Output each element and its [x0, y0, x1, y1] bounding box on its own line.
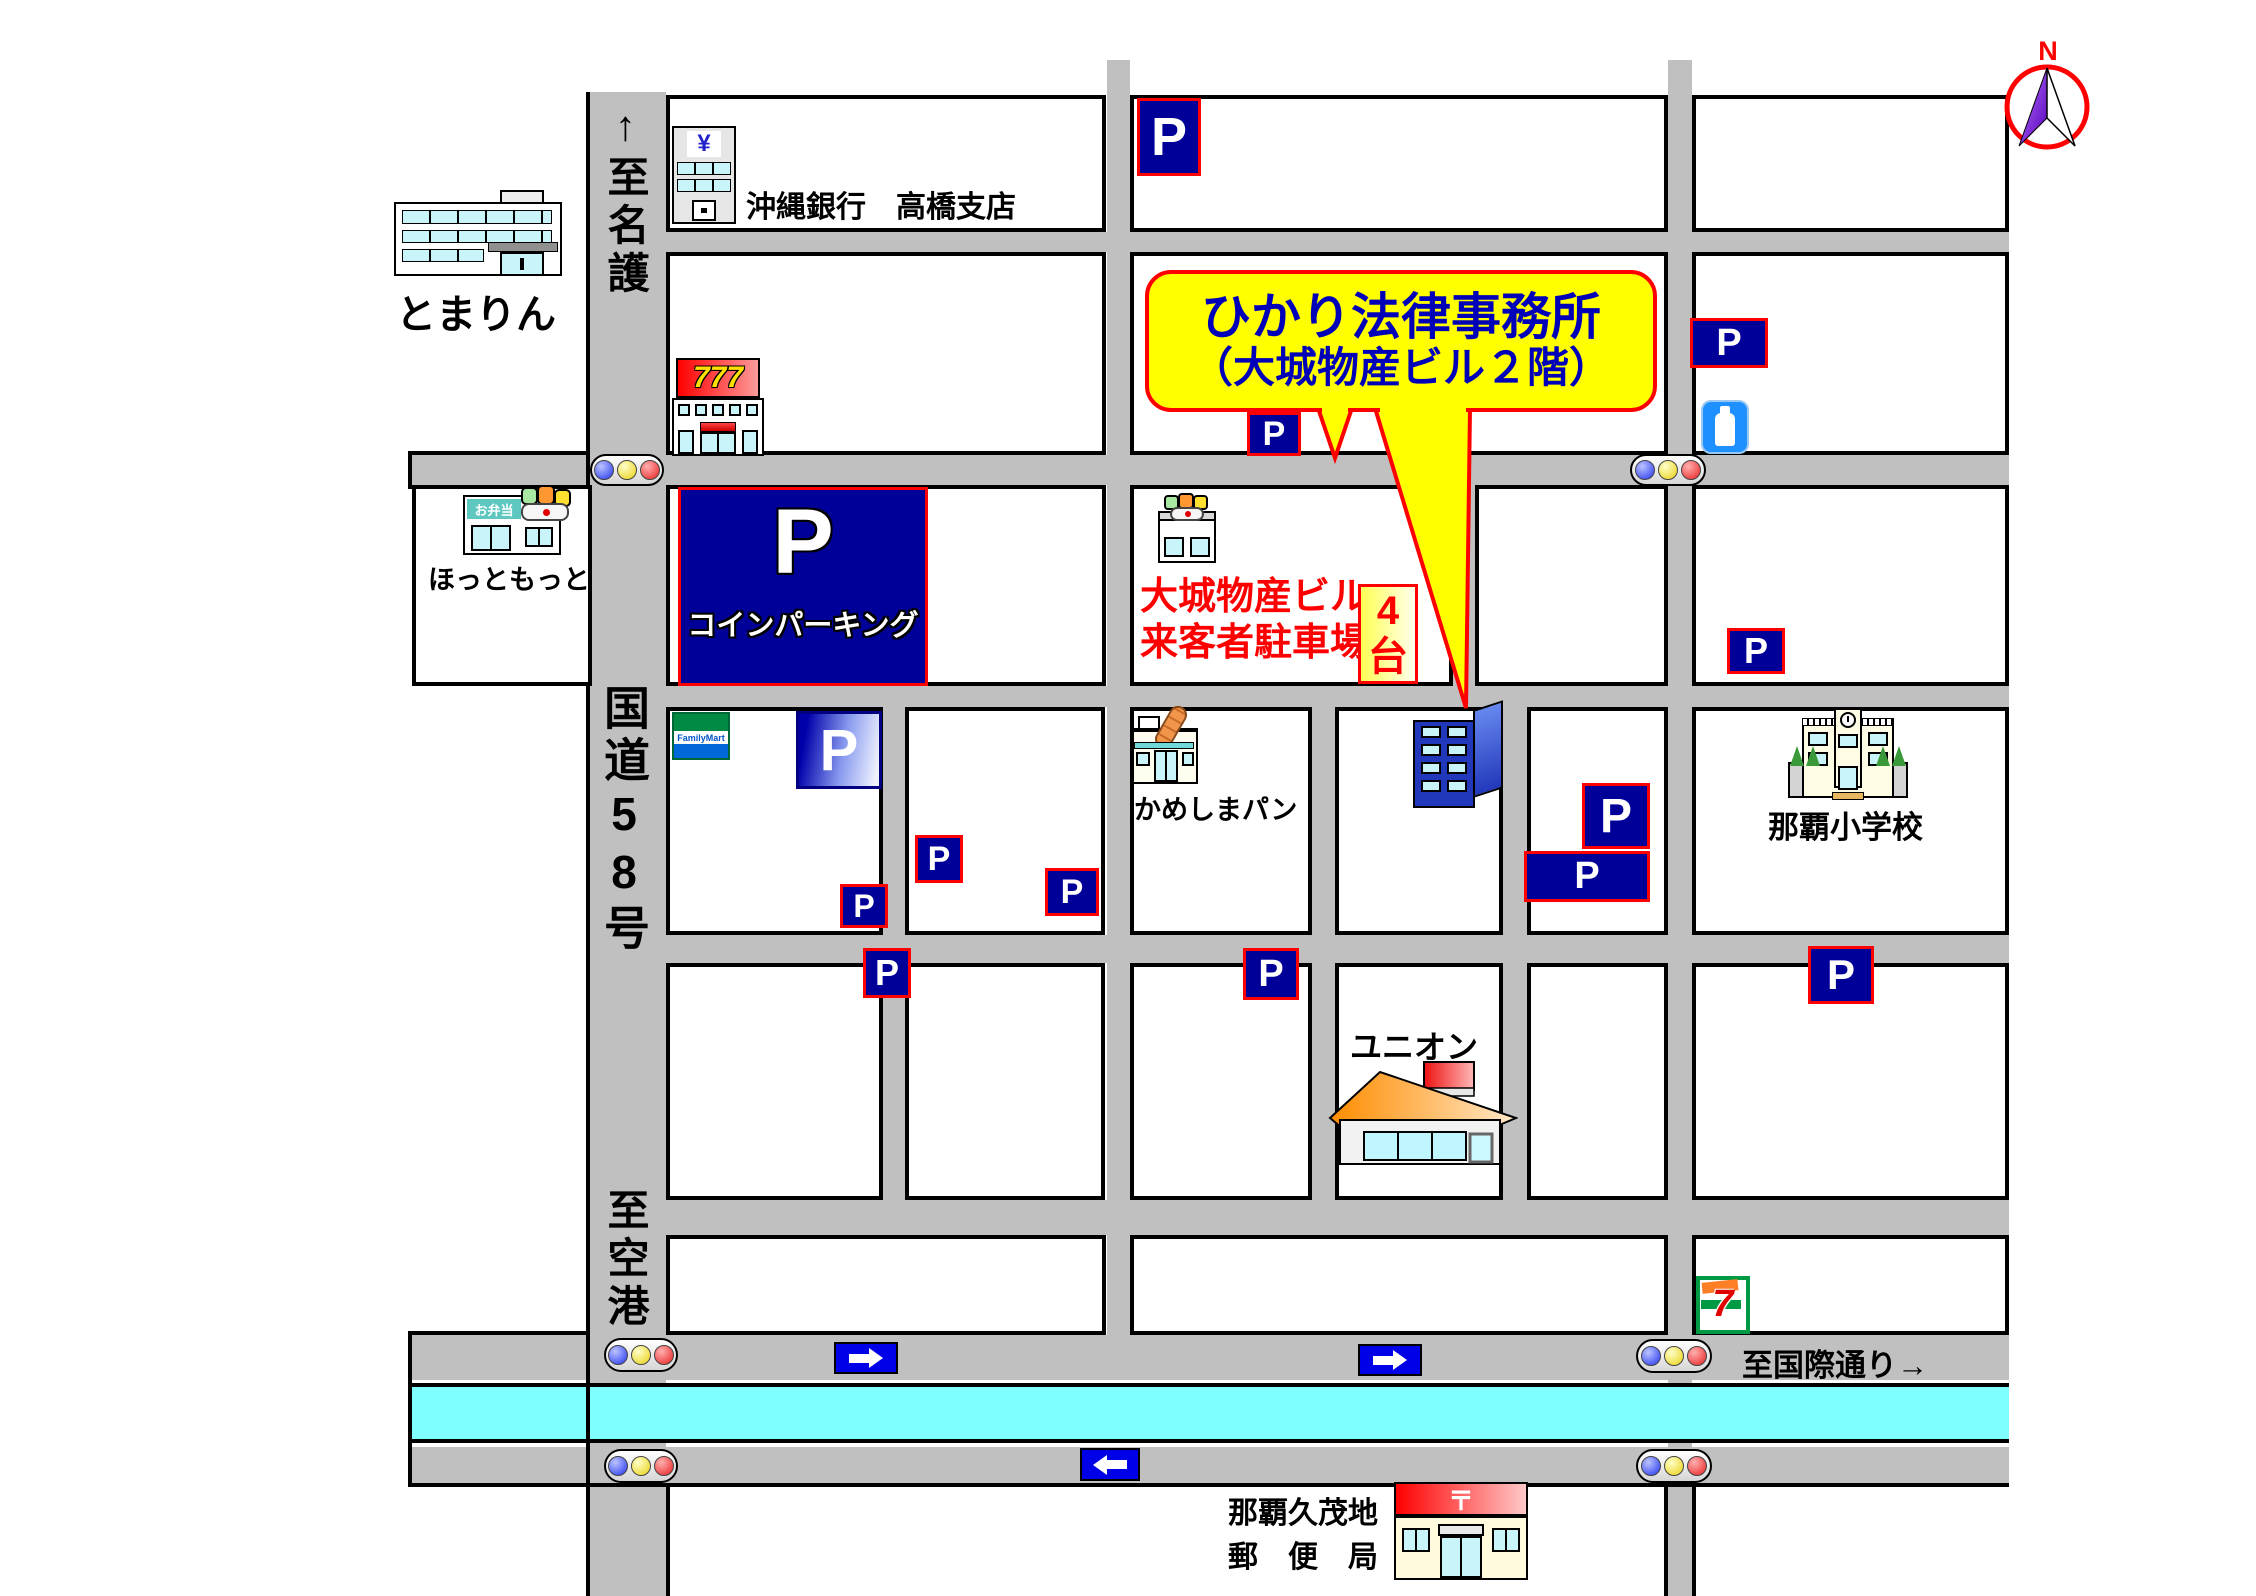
road-edge [412, 1331, 590, 1335]
parking-letter: P [1151, 106, 1187, 168]
kameshima-label: かめしまパン [1134, 788, 1297, 827]
city-block [1130, 95, 1668, 232]
hottomotto-sign: お弁当 [474, 500, 513, 519]
arrow-head [1393, 1350, 1407, 1370]
traffic-light [1630, 454, 1706, 486]
parking-letter: P [875, 952, 899, 994]
river-band [412, 1383, 2009, 1443]
road-label-to-kokusai: 至国際通り→ [1742, 1340, 1928, 1385]
post-office-label: 那覇久茂地 郵 便 局 [1213, 1488, 1393, 1576]
union-store-art [1328, 1056, 1518, 1170]
arrow-bar [849, 1354, 869, 1363]
school-icon [1788, 708, 1908, 802]
parking-sign: P [1808, 946, 1874, 1004]
road-edge [408, 451, 412, 489]
parking-letter: P [1600, 789, 1632, 844]
blue-bottle-icon [1701, 400, 1749, 454]
traffic-light [604, 1449, 678, 1483]
road-edge [408, 1331, 412, 1487]
arrow-head [1093, 1455, 1107, 1475]
traffic-lamp-yellow [631, 1345, 651, 1365]
city-block [666, 963, 883, 1200]
parking-letter: P [928, 840, 951, 879]
traffic-light [1636, 1449, 1712, 1483]
traffic-lamp-yellow [1664, 1456, 1684, 1476]
callout-tail-joint [1322, 402, 1348, 412]
parking-letter: P [853, 888, 874, 925]
callout-tail-joint [1380, 402, 1466, 412]
parking-sign: P [1582, 783, 1650, 849]
office-location: （大城物産ビル２階） [1191, 345, 1611, 391]
parking-sign: P [840, 884, 888, 928]
arrow-bar [1373, 1356, 1393, 1365]
road-label-route58: 国道58号 [601, 684, 647, 956]
compass-rose-icon [1998, 60, 2098, 160]
oneway-arrow-right-icon [1358, 1344, 1422, 1376]
traffic-lamp-yellow [631, 1456, 651, 1476]
traffic-lamp-yellow [1664, 1346, 1684, 1366]
seven-digit: 7 [1696, 1278, 1750, 1330]
road-edge [1692, 1483, 1696, 1596]
parking-sign: P [1727, 628, 1785, 674]
parking-sign: P [915, 835, 963, 883]
road-edge [412, 451, 590, 455]
kameshima-icon [1132, 710, 1204, 786]
city-block [1692, 95, 2009, 232]
bank-icon: ¥ [672, 126, 736, 224]
arrow-bar [1107, 1460, 1127, 1469]
traffic-lamp-red [640, 460, 660, 480]
parking-letter: P [1258, 953, 1283, 996]
arrow-head [869, 1348, 883, 1368]
road-label-to-nago: ↑至名護 [604, 102, 646, 299]
traffic-lamp-red [654, 1456, 674, 1476]
traffic-light [604, 1338, 678, 1372]
pachinko-icon: 777 [672, 358, 764, 456]
familymart-icon: FamilyMart [672, 712, 730, 760]
union-store-icon [1328, 1056, 1518, 1170]
parking-letter: P [772, 490, 833, 596]
road-edge [1664, 1483, 1668, 1596]
bank-logo: ¥ [687, 131, 721, 157]
road-h-top [666, 232, 2009, 252]
oneway-arrow-right-icon [834, 1342, 898, 1374]
union-label: ユニオン [1350, 1022, 1478, 1068]
yen-glyph: ¥ [697, 130, 710, 158]
parking-letter: P [1827, 951, 1855, 999]
parking-sign: P [1243, 948, 1299, 1000]
traffic-lamp-blue [608, 1456, 628, 1476]
post-mark: 〒 [1448, 1481, 1474, 1518]
post-office-line1: 那覇久茂地 [1213, 1488, 1393, 1532]
parking-letter: P [1744, 630, 1768, 672]
hottomotto-icon: お弁当 [463, 487, 573, 555]
office-name: ひかり法律事務所 [1201, 290, 1601, 345]
parking-sign: P [1137, 98, 1201, 176]
small-shop-icon [1158, 497, 1218, 565]
traffic-lamp-blue [1635, 460, 1655, 480]
traffic-lamp-blue [1641, 1456, 1661, 1476]
city-block [1130, 1235, 1668, 1335]
traffic-lamp-blue [1641, 1346, 1661, 1366]
road-h-4 [666, 1200, 2009, 1235]
post-office-icon: 〒 [1394, 1482, 1528, 1580]
traffic-lamp-red [654, 1345, 674, 1365]
traffic-lamp-red [1687, 1346, 1707, 1366]
city-block [905, 963, 1105, 1200]
tomarin-label: とまりん [396, 282, 556, 340]
traffic-light [1636, 1339, 1712, 1373]
traffic-lamp-yellow [617, 460, 637, 480]
road-edge [666, 1483, 670, 1596]
coin-parking-sign: P コインパーキング [678, 487, 928, 686]
traffic-lamp-yellow [1658, 460, 1678, 480]
access-map: ↑至名護 国道58号 至空港↓ 至国際通り→ P P P P P P P P P… [0, 0, 2256, 1596]
bank-label: 沖縄銀行 高橋支店 [746, 182, 1016, 226]
road-edge [412, 1483, 2009, 1487]
city-block [1475, 485, 1668, 686]
compass: N [1998, 36, 2098, 156]
city-block [1527, 963, 1668, 1200]
post-office-line2: 郵 便 局 [1213, 1532, 1393, 1576]
parking-letter: P [820, 717, 859, 784]
office-building-icon [1413, 708, 1507, 808]
hottomotto-label: ほっともっと [428, 558, 590, 597]
road-vertical-center [1107, 60, 1130, 1380]
oneway-arrow-left-icon [1080, 1448, 1140, 1481]
callout-tail [1290, 400, 1490, 720]
traffic-lamp-blue [608, 1345, 628, 1365]
parking-letter: P [1574, 855, 1599, 898]
school-label: 那覇小学校 [1768, 802, 1923, 847]
traffic-lamp-red [1681, 460, 1701, 480]
parking-sign-gradient: P [796, 711, 882, 789]
traffic-light [590, 454, 664, 486]
parking-letter: P [1716, 322, 1741, 365]
tomarin-building-icon [388, 190, 568, 278]
seven-eleven-icon: 7 [1696, 1276, 1750, 1334]
office-callout: ひかり法律事務所 （大城物産ビル２階） [1145, 270, 1657, 412]
city-block [666, 1235, 1106, 1335]
coin-parking-label: コインパーキング [687, 602, 918, 644]
parking-letter: P [1263, 415, 1286, 454]
parking-sign: P [1045, 868, 1099, 916]
familymart-logo: FamilyMart [677, 733, 725, 743]
parking-sign: P [1524, 851, 1650, 902]
traffic-lamp-blue [594, 460, 614, 480]
pachinko-sign: 777 [693, 361, 743, 395]
road-edge [586, 92, 590, 1596]
parking-sign: P [1690, 318, 1768, 368]
parking-letter: P [1061, 873, 1084, 912]
parking-sign: P [863, 948, 911, 998]
traffic-lamp-red [1687, 1456, 1707, 1476]
seven-glyph: 7 [1712, 1283, 1733, 1326]
